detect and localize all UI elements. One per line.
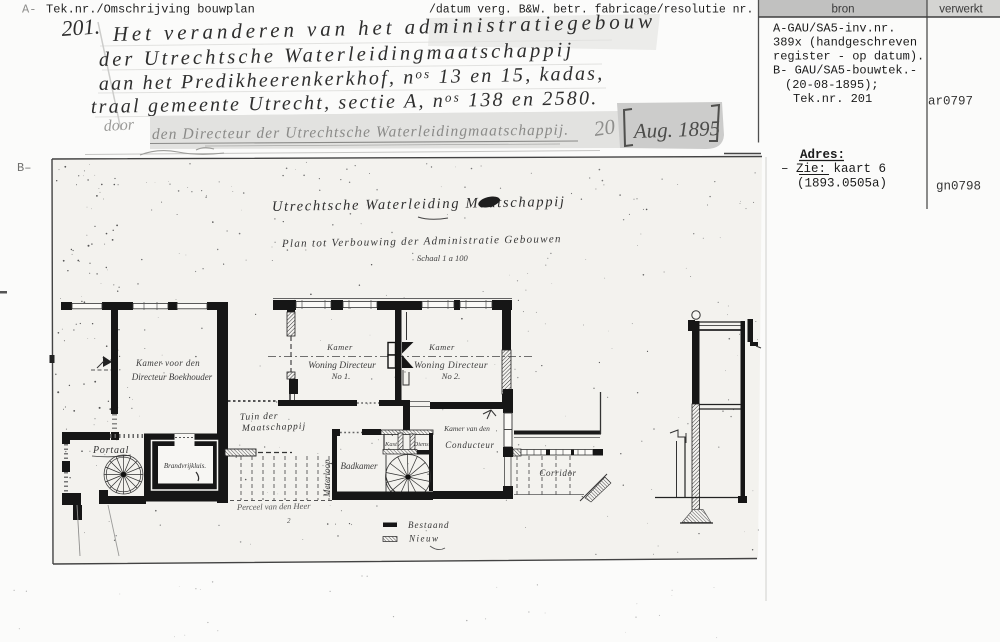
svg-text:Directeur Boekhouder: Directeur Boekhouder [131,372,213,382]
svg-text:bron: bron [831,4,854,16]
svg-text:Kamer van den: Kamer van den [443,424,490,433]
svg-text:– Zie: kaart 6: – Zie: kaart 6 [781,162,886,176]
svg-text:register - op datum).: register - op datum). [773,50,924,64]
svg-text:door: door [103,116,135,135]
svg-text:Corridor: Corridor [539,468,576,478]
svg-text:Badkamer: Badkamer [341,461,378,471]
svg-text:Kamer voor den: Kamer voor den [135,358,200,368]
svg-text:B- GAU/SA5-bouwtek.-: B- GAU/SA5-bouwtek.- [773,64,917,78]
svg-text:20: 20 [592,114,617,141]
svg-text:Tek.nr. 201: Tek.nr. 201 [793,92,872,106]
svg-text:Bestaand: Bestaand [408,520,450,530]
svg-text:B–: B– [17,161,31,175]
svg-text:Aug. 1895: Aug. 1895 [631,116,720,143]
svg-text:gn0798: gn0798 [936,180,981,194]
svg-text:Woning Directeur: Woning Directeur [308,361,376,371]
svg-text:(20-08-1895);: (20-08-1895); [785,78,879,92]
svg-text:Woning Directeur: Woning Directeur [414,361,488,371]
svg-text:verwerkt: verwerkt [939,4,983,16]
svg-text:Conducteur: Conducteur [445,440,495,450]
svg-text:ar0797: ar0797 [928,95,973,109]
svg-text:Portaal: Portaal [92,445,129,456]
svg-text:No 2.: No 2. [441,371,460,381]
svg-text:Tuin der: Tuin der [240,412,279,423]
svg-text:201.: 201. [61,13,101,41]
svg-text:Kamer: Kamer [428,342,455,352]
svg-text:Kast: Kast [384,441,397,448]
svg-text:Dienst: Dienst [413,441,431,448]
svg-text:Nieuw: Nieuw [408,534,440,544]
svg-text:Perceel van den Heer: Perceel van den Heer [236,501,311,512]
svg-text:Brandvrijkluis.: Brandvrijkluis. [164,462,206,470]
svg-text:No 1.: No 1. [331,371,350,381]
svg-text:A-GAU/SA5-inv.nr.: A-GAU/SA5-inv.nr. [773,22,895,36]
svg-text:Schaal 1 a 100: Schaal 1 a 100 [417,253,469,263]
svg-text:2: 2 [287,517,291,525]
svg-text:(1893.0505a): (1893.0505a) [797,177,887,191]
svg-text:Meterloop: Meterloop [322,459,332,498]
svg-text:389x (handgeschreven: 389x (handgeschreven [773,36,917,50]
svg-text:Kamer: Kamer [326,342,353,352]
svg-text:A-: A- [22,3,36,17]
